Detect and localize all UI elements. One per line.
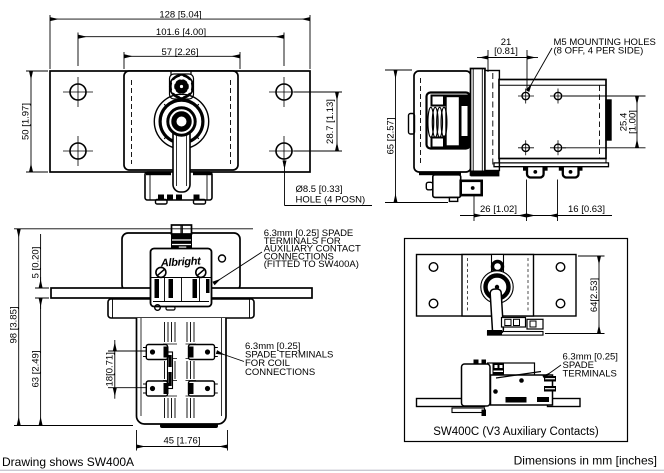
svg-text:50 [1.97]: 50 [1.97] bbox=[21, 103, 32, 140]
svg-text:98 [3.85]: 98 [3.85] bbox=[9, 307, 20, 344]
svg-text:128 [5.04]: 128 [5.04] bbox=[159, 10, 201, 21]
svg-text:(FITTED TO SW400A): (FITTED TO SW400A) bbox=[264, 259, 359, 270]
svg-text:63 [2.49]: 63 [2.49] bbox=[31, 351, 42, 388]
svg-text:Albright: Albright bbox=[160, 255, 203, 269]
svg-text:Dimensions in mm [inches]: Dimensions in mm [inches] bbox=[514, 454, 657, 468]
svg-text:28.7 [1.13]: 28.7 [1.13] bbox=[325, 99, 336, 144]
svg-text:CONNECTIONS: CONNECTIONS bbox=[245, 367, 315, 378]
svg-text:18[0.71]: 18[0.71] bbox=[105, 352, 116, 386]
svg-text:57 [2.26]: 57 [2.26] bbox=[162, 47, 199, 58]
svg-text:101.6 [4.00]: 101.6 [4.00] bbox=[156, 27, 206, 38]
svg-text:26 [1.02]: 26 [1.02] bbox=[480, 204, 517, 215]
svg-text:64[2.53]: 64[2.53] bbox=[589, 278, 600, 312]
svg-text:5 [0.20]: 5 [0.20] bbox=[31, 247, 42, 279]
svg-text:45 [1.76]: 45 [1.76] bbox=[164, 436, 201, 447]
svg-text:HOLE (4 POSN): HOLE (4 POSN) bbox=[296, 194, 366, 205]
svg-text:(8 OFF, 4 PER SIDE): (8 OFF, 4 PER SIDE) bbox=[554, 46, 644, 57]
svg-text:16 [0.63]: 16 [0.63] bbox=[568, 204, 605, 215]
svg-text:Drawing shows SW400A: Drawing shows SW400A bbox=[2, 455, 134, 469]
svg-text:[0.81]: [0.81] bbox=[494, 46, 518, 57]
svg-text:TERMINALS: TERMINALS bbox=[563, 369, 617, 380]
svg-text:SW400C (V3 Auxiliary Contacts): SW400C (V3 Auxiliary Contacts) bbox=[433, 426, 599, 438]
svg-text:[1.00]: [1.00] bbox=[628, 110, 639, 134]
svg-text:65 [2.57]: 65 [2.57] bbox=[386, 118, 397, 155]
